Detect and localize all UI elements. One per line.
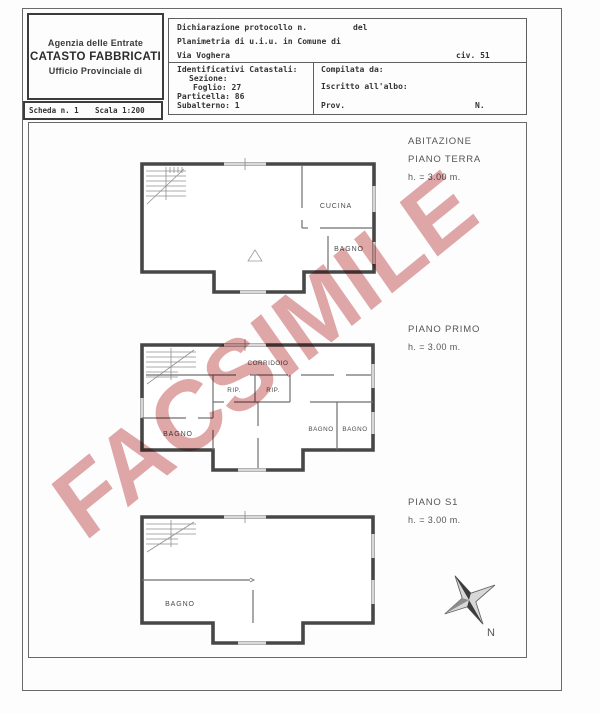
primo-room-bagno2: BAGNO: [308, 426, 333, 433]
particella-field: Particella: 86: [177, 92, 244, 101]
caption-terra-height: h. = 3.00 m.: [408, 172, 481, 182]
n-label: N.: [475, 101, 485, 110]
scale-label: Scala 1:200: [95, 106, 145, 115]
street-value: Via Voghera: [177, 51, 230, 60]
primo-room-corridoio: CORRIDOIO: [248, 360, 289, 367]
civic-number: civ. 51: [456, 51, 490, 60]
floorplan-piano-s1: BAGNO: [138, 512, 378, 652]
form-horizontal-divider: [169, 62, 526, 63]
foglio-field: Foglio: 27: [193, 83, 241, 92]
prov-label: Prov.: [321, 101, 345, 110]
del-label: del: [353, 23, 367, 32]
primo-room-rip1: RIP.: [227, 387, 240, 394]
caption-piano-primo-label: PIANO PRIMO: [408, 324, 480, 335]
floorplan-piano-primo: CORRIDOIO RIP. RIP. BAGNO BAGNO BAGNO: [138, 340, 378, 480]
provincial-office-label: Ufficio Provinciale di: [49, 66, 142, 76]
caption-primo-height: h. = 3.00 m.: [408, 342, 480, 352]
caption-abitazione: ABITAZIONE: [408, 136, 481, 147]
floorplan-piano-terra: CUCINA BAGNO: [138, 158, 378, 298]
primo-room-rip2: RIP.: [266, 387, 279, 394]
cadastral-document-page: Agenzia delle Entrate CATASTO FABBRICATI…: [0, 0, 600, 714]
compiled-by-label: Compilata da:: [321, 65, 384, 74]
primo-room-bagno3: BAGNO: [342, 426, 367, 433]
terra-room-cucina: CUCINA: [320, 203, 352, 210]
terra-door-gap: [244, 269, 270, 275]
sezione-field: Sezione:: [189, 74, 228, 83]
planimetria-label: Planimetria di u.i.u. in Comune di: [177, 37, 341, 46]
primo-room-bagno1: BAGNO: [163, 431, 193, 438]
caption-s1-height: h. = 3.00 m.: [408, 515, 461, 525]
caption-piano-primo: PIANO PRIMO h. = 3.00 m.: [408, 324, 480, 359]
compass-star-icon: [431, 561, 509, 638]
subalterno-field: Subalterno: 1: [177, 101, 240, 110]
registered-label: Iscritto all'albo:: [321, 82, 408, 91]
agency-name: Agenzia delle Entrate: [48, 38, 143, 48]
agency-header-box: Agenzia delle Entrate CATASTO FABBRICATI…: [27, 13, 164, 100]
scheda-number: Scheda n. 1: [29, 106, 79, 115]
protocol-form-box: Dichiarazione protocollo n. del Planimet…: [168, 18, 527, 115]
catasto-title: CATASTO FABBRICATI: [30, 51, 161, 63]
caption-piano-terra-label: PIANO TERRA: [408, 154, 481, 165]
scheda-box: Scheda n. 1 Scala 1:200: [23, 101, 163, 120]
caption-piano-s1-label: PIANO S1: [408, 497, 461, 508]
s1-room-bagno: BAGNO: [165, 601, 195, 608]
cadastral-ids-title: Identificativi Catastali:: [177, 65, 297, 74]
compass-rose: N: [435, 570, 515, 645]
caption-piano-s1: PIANO S1 h. = 3.00 m.: [408, 497, 461, 532]
terra-room-bagno: BAGNO: [334, 246, 364, 253]
caption-piano-terra: ABITAZIONE PIANO TERRA h. = 3.00 m.: [408, 136, 481, 189]
declaration-protocol-label: Dichiarazione protocollo n.: [177, 23, 307, 32]
form-vertical-divider: [313, 62, 314, 114]
compass-north-label: N: [487, 627, 495, 639]
